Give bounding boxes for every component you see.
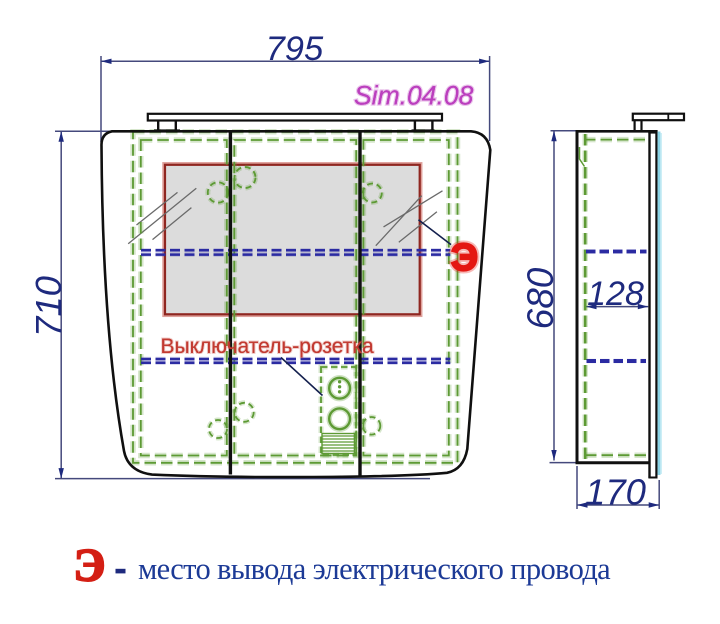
svg-text:128: 128 (587, 275, 644, 313)
svg-text:место вывода электрического пр: место вывода электрического провода (138, 552, 611, 586)
svg-text:170: 170 (585, 472, 646, 513)
svg-text:Э: Э (451, 237, 478, 279)
svg-text:Выключатель-розетка: Выключатель-розетка (161, 335, 375, 358)
svg-text:Sim.04.08: Sim.04.08 (354, 81, 474, 111)
svg-text:710: 710 (28, 276, 69, 337)
svg-text:Э: Э (74, 540, 106, 592)
svg-text:680: 680 (520, 267, 561, 329)
svg-text:795: 795 (266, 30, 324, 68)
